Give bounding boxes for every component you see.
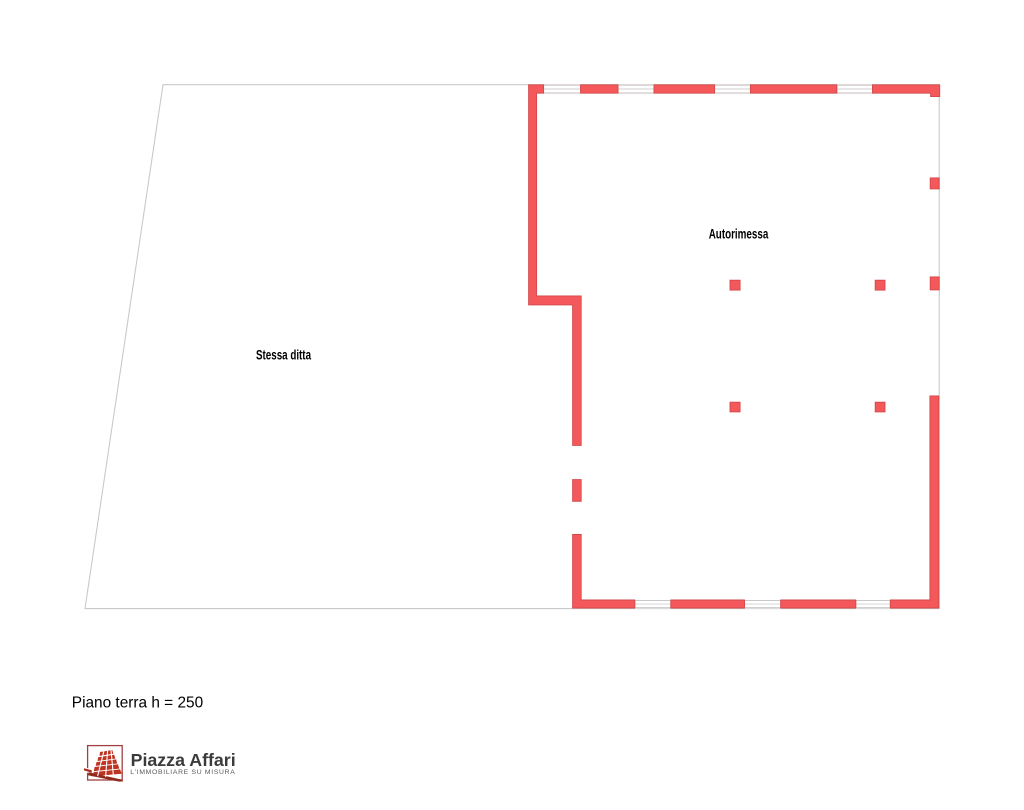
svg-text:Autorimessa: Autorimessa: [709, 226, 769, 242]
svg-text:Piazza Affari: Piazza Affari: [131, 750, 236, 770]
svg-text:Piano terra h = 250: Piano terra h = 250: [72, 694, 204, 711]
svg-text:L'IMMOBILIARE SU MISURA: L'IMMOBILIARE SU MISURA: [130, 769, 235, 776]
svg-text:Stessa ditta: Stessa ditta: [256, 347, 311, 363]
